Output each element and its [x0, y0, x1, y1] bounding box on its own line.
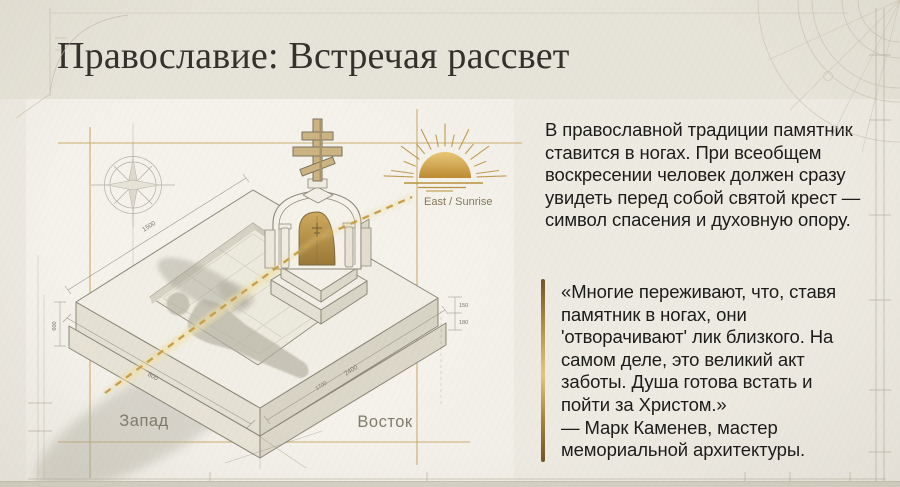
intro-paragraph: В православной традиции памятник ставитс… [545, 119, 877, 232]
svg-text:150: 150 [459, 303, 468, 309]
svg-text:180: 180 [459, 320, 468, 326]
sunrise-icon [384, 124, 506, 191]
svg-text:600: 600 [52, 321, 58, 330]
page-title: Православие: Встречая рассвет [57, 34, 570, 78]
burial-plot-diagram: East / Sunrise 1500 800 2400 1700 150 18… [0, 97, 540, 487]
quote-text: «Многие переживают, что, ставя памятник … [561, 281, 861, 417]
orthodox-cross-icon [293, 119, 342, 181]
east-label: Восток [357, 413, 412, 431]
infographic-orthodox-sunrise: { "header": { "title": "Православие: Вст… [0, 0, 900, 487]
svg-text:1500: 1500 [141, 220, 157, 234]
west-label: Запад [119, 412, 168, 430]
bottom-strip [0, 481, 900, 487]
quote-block: «Многие переживают, что, ставя памятник … [561, 281, 861, 462]
quote-accent-bar [541, 279, 545, 462]
sun-label: East / Sunrise [424, 196, 492, 208]
quote-attribution: — Марк Каменев, мастер мемориальной архи… [561, 417, 861, 462]
